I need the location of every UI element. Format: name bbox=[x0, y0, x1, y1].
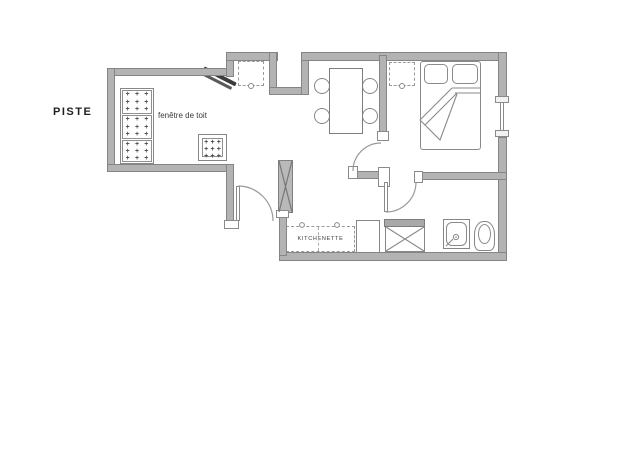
wall-bedroom-divider bbox=[379, 55, 387, 132]
piste-label: PISTE bbox=[53, 106, 92, 118]
hall-wall-left-cap bbox=[348, 166, 358, 179]
dining-table bbox=[329, 68, 363, 134]
wall-living-top bbox=[107, 68, 234, 76]
bathroom-door-jamb bbox=[414, 171, 423, 183]
window bbox=[500, 103, 504, 131]
wall-nook-cabinet bbox=[238, 61, 264, 86]
floor-plan-canvas: PISTE fenêtre de toit +++++++++ ++++++++… bbox=[0, 0, 640, 452]
dining-chair bbox=[314, 78, 330, 94]
roof-window-label: fenêtre de toit bbox=[158, 111, 207, 120]
sofa-cushion: +++++++++ bbox=[122, 90, 152, 114]
entrance-door-arc bbox=[238, 186, 273, 221]
nightstand bbox=[389, 62, 415, 86]
technical-column bbox=[278, 160, 293, 213]
ottoman-cushion: +++++++++ bbox=[202, 138, 223, 157]
pillow bbox=[452, 64, 478, 84]
wall-hall-left bbox=[279, 216, 287, 256]
shower bbox=[385, 226, 425, 252]
bathroom-door-leaf bbox=[384, 182, 388, 212]
sofa-cushion: +++++++++ bbox=[122, 140, 152, 162]
toilet-bowl bbox=[478, 224, 491, 244]
shower-tray-edge bbox=[384, 219, 425, 227]
hall-wall-cap bbox=[276, 210, 289, 218]
wall-top-right-segment bbox=[301, 52, 507, 61]
dining-chair bbox=[314, 108, 330, 124]
wall-living-left bbox=[107, 68, 115, 172]
kitchenette-label: KITCHENETTE bbox=[287, 227, 354, 251]
entrance-door-jamb bbox=[224, 220, 239, 229]
pillow bbox=[424, 64, 448, 84]
wall-bathroom-top bbox=[417, 172, 507, 180]
entrance-door-leaf bbox=[236, 186, 240, 221]
wall-bottom bbox=[279, 252, 507, 261]
wall-right-upper bbox=[498, 52, 507, 98]
wall-living-bottom bbox=[107, 164, 232, 172]
kitchenette-counter: KITCHENETTE bbox=[286, 226, 355, 252]
bathroom-door-arc bbox=[386, 182, 416, 212]
window-sill-bottom bbox=[495, 130, 509, 137]
wall-living-right-lower bbox=[226, 164, 234, 222]
wall-right-lower bbox=[498, 137, 507, 261]
sofa-cushion: +++++++++ bbox=[122, 115, 152, 139]
fridge bbox=[356, 220, 380, 253]
kitchenette-divider bbox=[318, 227, 319, 251]
window-sill-top bbox=[495, 96, 509, 103]
dining-chair bbox=[362, 78, 378, 94]
dining-chair bbox=[362, 108, 378, 124]
sink-basin bbox=[446, 222, 467, 246]
bedroom-door-jamb bbox=[377, 131, 389, 141]
